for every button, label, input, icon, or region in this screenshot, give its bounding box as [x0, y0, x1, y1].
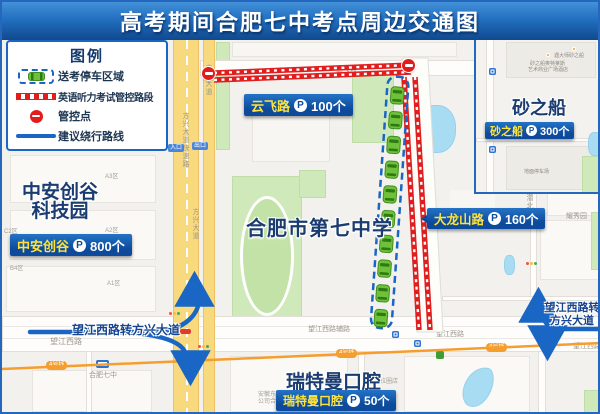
legend-item-control-section: 英语听力考试管控路段: [14, 86, 160, 106]
banner-count: 300个: [540, 123, 569, 139]
inset-poi-label: 遇大师砂之船: [554, 52, 584, 59]
legend-item-control-point: 管控点: [14, 106, 160, 126]
green-area: [216, 42, 230, 150]
block-label-a1: A1区: [107, 278, 120, 287]
road-minor: [442, 296, 600, 301]
parking-icon: P: [73, 239, 86, 252]
entrance-badge: 入口: [168, 144, 184, 152]
place-label-shazhichuan: 砂之船: [504, 94, 574, 120]
route-note-left: 望江西路转方兴大道: [72, 321, 180, 338]
poi-dots-icon: [526, 262, 537, 265]
parking-icon: P: [526, 125, 537, 136]
exit-badge: 出口: [192, 142, 208, 150]
legend-item-label: 英语听力考试管控路段: [58, 89, 153, 104]
poi-label-misc2: 公司合: [258, 396, 276, 405]
inset-map-shazhichuan: 遇大师砂之船 砂之船奥特莱斯 艺术商业广场酒店 地面停车场 砂之船 砂之船 P …: [474, 40, 600, 194]
place-label-school: 合肥市第七中学: [246, 212, 393, 241]
parking-banner-zhongan: 中安创谷 P 800个: [10, 234, 132, 256]
metro-entrance-icon: [414, 340, 421, 347]
inset-poi-label: 艺术商业广场酒店: [528, 66, 568, 73]
banner-name: 瑞特曼口腔: [283, 392, 343, 409]
legend-item-label: 建议绕行路线: [58, 128, 124, 144]
metro-entrance-icon: [489, 68, 496, 75]
road-dalongshan: [402, 58, 443, 332]
parking-icon: P: [347, 394, 360, 407]
banner-count: 50个: [364, 392, 389, 409]
legend-item-parking-zone: 送考停车区域: [14, 66, 160, 86]
poi-dots-icon: [198, 345, 209, 348]
metro-entrance-icon: [489, 146, 496, 153]
title-bar: 高考期间合肥七中考点周边交通图: [2, 2, 598, 40]
road-label-yunfei: 云飞路: [336, 67, 357, 77]
banner-count: 800个: [90, 236, 125, 255]
road-minor: [538, 351, 546, 414]
no-entry-icon: [402, 59, 415, 72]
poi-dot-icon: [546, 53, 550, 57]
metro-line4-badge: 4号线: [46, 361, 67, 370]
road-label-wangjiang: 望江西路: [436, 329, 464, 339]
parking-banner-yunfei: 云飞路 P 100个: [244, 94, 353, 116]
block-label-a2: A2区: [105, 225, 118, 234]
metro-entrance-icon: [392, 331, 399, 338]
inset-poi-label: 地面停车场: [524, 168, 549, 175]
banner-count: 100个: [311, 96, 346, 115]
metro-station-label-hefei7: 合肥七中: [89, 370, 117, 380]
green-area: [299, 170, 326, 198]
metro-line4-badge: 4号线: [336, 349, 357, 358]
road-fangxing-avenue: [203, 40, 215, 414]
road-label-wangjiang-fulu: 望江西路辅路: [308, 324, 350, 334]
bus-icon: [28, 72, 45, 81]
map-block: [232, 42, 457, 57]
no-entry-icon: [202, 67, 215, 80]
route-note-line: 望江西路转: [544, 302, 600, 315]
green-area: [582, 156, 600, 194]
route-note-line: 方兴大道: [544, 315, 600, 328]
parking-icon: P: [294, 99, 307, 112]
poi-label-yaoxiuyuan: 耀秀园: [566, 211, 587, 221]
road-minor: [86, 351, 92, 414]
route-note-right: 望江西路转 方兴大道: [544, 302, 600, 327]
legend-item-detour-route: 建议绕行路线: [14, 126, 160, 146]
banner-count: 160个: [505, 209, 538, 228]
place-label-line: 科技园: [12, 202, 108, 221]
pond: [588, 132, 600, 156]
legend-title: 图例: [14, 45, 160, 66]
pond: [504, 255, 515, 275]
road-label-fangxing: 方兴大道: [190, 208, 200, 240]
parking-banner-shazhichuan: 砂之船 P 300个: [485, 122, 574, 139]
bus-stop-icon: [180, 329, 191, 334]
place-label-zhongan-campus: 中安创谷 科技园: [12, 183, 108, 221]
place-label-line: 中安创谷: [12, 183, 108, 202]
banner-name: 云飞路: [251, 96, 290, 115]
inset-road: [486, 40, 494, 194]
poi-dot-icon: [572, 47, 576, 51]
control-section-icon: [16, 93, 56, 100]
green-area: [584, 390, 600, 414]
road-number-badge: [436, 351, 444, 359]
green-area: [591, 212, 600, 270]
block-label-a3: A3区: [105, 171, 118, 180]
parking-zone-icon: [18, 69, 54, 84]
parking-banner-ruiteman: 瑞特曼口腔 P 50个: [276, 390, 396, 411]
block-label-b4: B4区: [10, 263, 23, 272]
parking-icon: P: [488, 212, 501, 225]
map-block: [6, 266, 156, 312]
metro-line4-badge: 4号线: [486, 343, 507, 352]
parking-banner-dalongshan: 大龙山路 P 160个: [427, 208, 545, 229]
detour-line-icon: [16, 134, 56, 138]
legend-item-label: 管控点: [58, 108, 91, 124]
banner-name: 中安创谷: [17, 236, 69, 255]
no-entry-icon: [30, 110, 43, 123]
poi-dots-icon: [169, 312, 180, 315]
road-label-wangjiang: 望江西路: [573, 341, 600, 351]
pond: [416, 105, 456, 153]
map-canvas: 方兴大道 方兴大道快速路 方兴大道 望江西路 望江西路辅路 望江西路 望江西路 …: [2, 40, 600, 414]
banner-name: 砂之船: [490, 123, 523, 139]
metro-station-icon: [96, 360, 109, 368]
legend: 图例 送考停车区域 英语听力考试管控路段 管控点 建议绕行路线: [6, 40, 168, 151]
road-label-fangxing-expwy: 方兴大道快速路: [180, 112, 190, 168]
legend-item-label: 送考停车区域: [58, 68, 124, 84]
traffic-map-poster: 高考期间合肥七中考点周边交通图: [0, 0, 600, 414]
poi-label-dental-side: 拉圈店: [380, 376, 398, 385]
green-area: [352, 75, 394, 143]
banner-name: 大龙山路: [434, 209, 484, 228]
page-title: 高考期间合肥七中考点周边交通图: [120, 5, 480, 37]
